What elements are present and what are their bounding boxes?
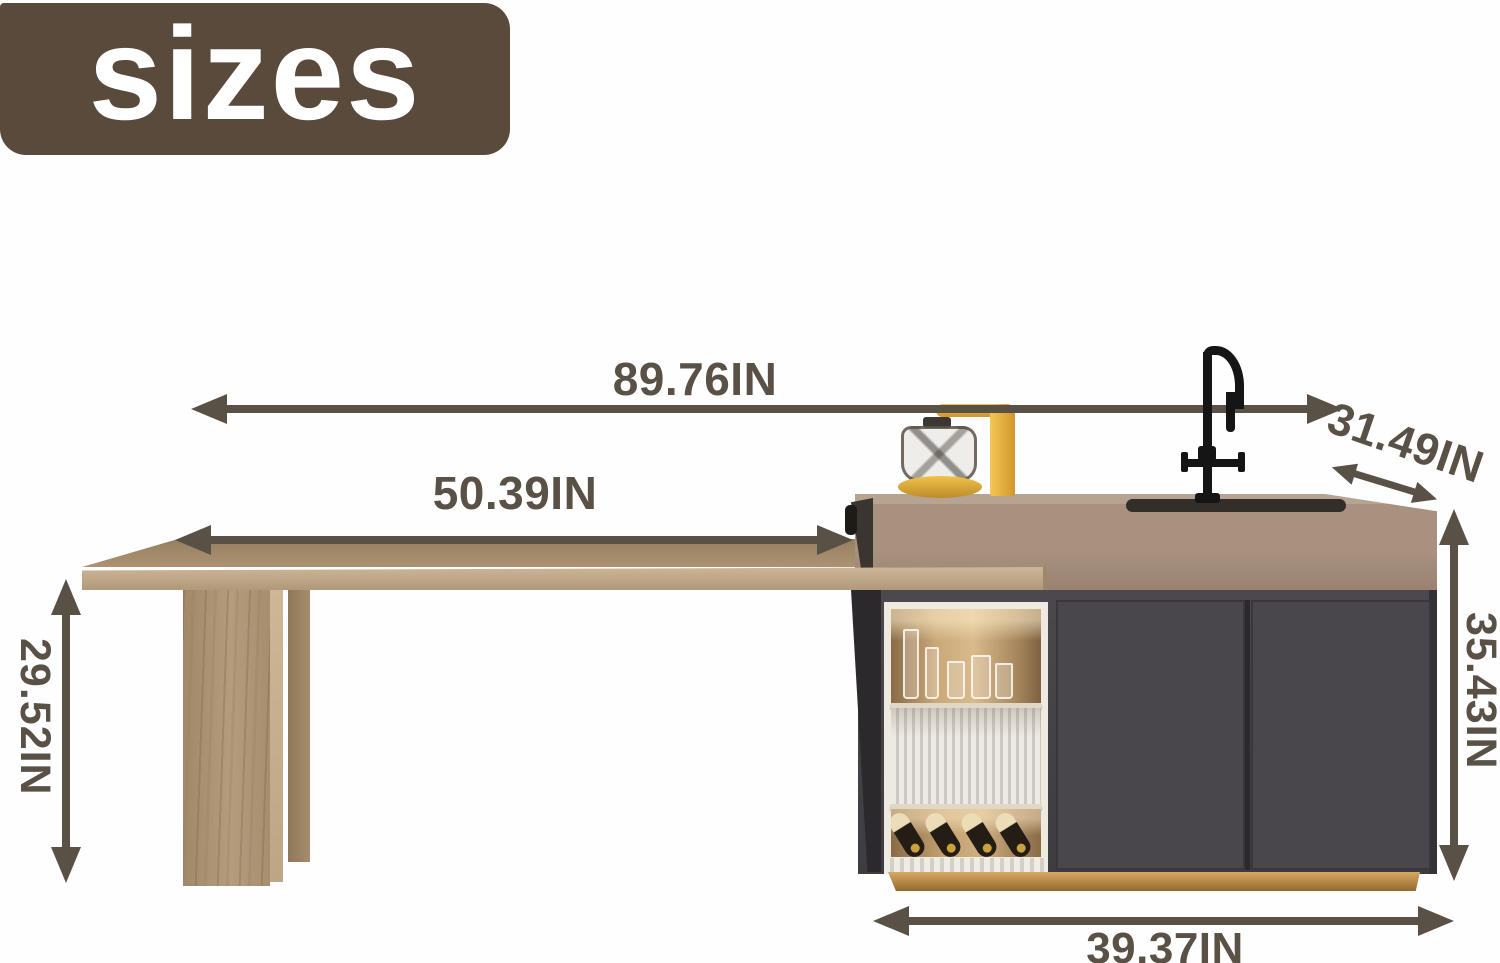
arrow-left-icon [191, 394, 227, 424]
dimension-island-height-arrow [1450, 544, 1458, 846]
arrow-left-icon [1329, 456, 1358, 484]
dimension-island-height-label: 35.43IN [1456, 612, 1500, 770]
dimension-island-depth-arrow [1353, 470, 1416, 495]
open-shelf-niche [884, 602, 1048, 860]
arrow-right-icon [1411, 481, 1440, 509]
gold-plinth-base [888, 872, 1420, 891]
kettle-base-tray [898, 476, 982, 498]
arrow-right-icon [817, 525, 853, 555]
faucet-base [1195, 493, 1220, 503]
wine-bottle-icon [958, 809, 1000, 857]
niche-wine-rack [891, 809, 1041, 857]
arrow-down-icon [1439, 845, 1469, 881]
table-leg-side-face [270, 590, 283, 882]
faucet-gooseneck [1203, 346, 1244, 409]
cabinet-door-left [1056, 600, 1245, 870]
drinking-glass-icon [903, 629, 919, 699]
cabinet-left-side-face [851, 590, 881, 872]
cabinet-door-seam [1245, 600, 1250, 870]
niche-ribbed-trim [884, 858, 1048, 874]
wine-bottle-icon [992, 809, 1034, 857]
arrow-up-icon [1439, 509, 1469, 545]
wine-bottle-icon [922, 809, 964, 857]
table-leg-front-panel [183, 590, 270, 886]
dimension-overall-width-label: 89.76IN [200, 352, 1190, 406]
faucet-handle-end [1238, 452, 1245, 472]
drinking-glass-icon [925, 647, 939, 699]
faucet-spout [1226, 392, 1235, 432]
kettle-stand-post [990, 404, 1015, 496]
faucet-collar [1198, 446, 1216, 461]
dimension-table-length-label: 50.39IN [180, 466, 850, 520]
niche-glassware-shelf [891, 609, 1041, 703]
sink-cutout [1126, 499, 1346, 512]
wine-bottle-icon [891, 809, 928, 857]
sizes-badge-label: sizes [89, 0, 422, 149]
table-leg-rear-panel [288, 590, 310, 862]
dimension-cabinet-width-label: 39.37IN [880, 924, 1450, 963]
drinking-glass-icon [971, 655, 991, 699]
drinking-glass-icon [995, 663, 1013, 699]
product-dimension-diagram: sizes [0, 0, 1500, 963]
drinking-glass-icon [947, 661, 965, 699]
arrow-left-icon [175, 525, 211, 555]
sizes-badge: sizes [0, 3, 510, 155]
arrow-down-icon [51, 847, 81, 883]
table-front-edge [82, 567, 1047, 590]
dimension-overall-width-arrow [226, 405, 1308, 413]
arrow-up-icon [51, 579, 81, 615]
dimension-table-length-arrow [210, 536, 818, 544]
faucet-handle-end [1181, 452, 1188, 472]
niche-fluted-panel [891, 708, 1041, 804]
cabinet-door-right [1251, 600, 1431, 870]
dimension-table-height-label: 29.52IN [10, 638, 59, 796]
glass-kettle-icon [901, 426, 977, 482]
dimension-table-height-arrow [62, 614, 70, 848]
